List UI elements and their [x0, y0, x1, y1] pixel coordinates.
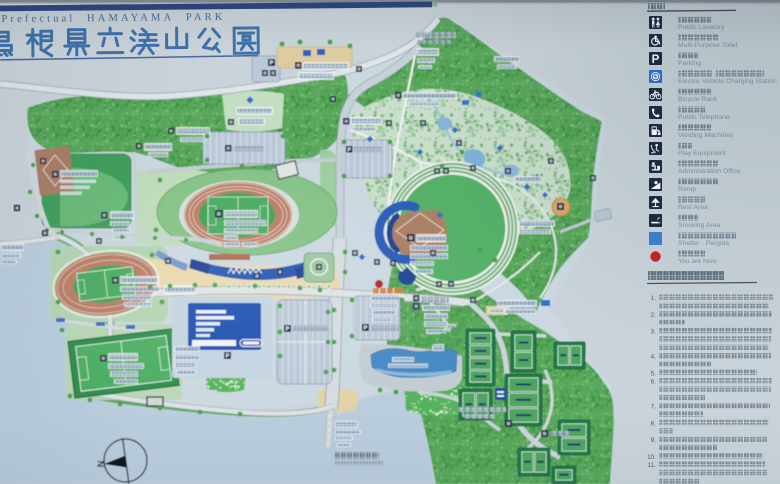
- svg-text:7.: 7.: [651, 404, 657, 411]
- svg-text:P: P: [652, 54, 660, 66]
- svg-text:5.: 5.: [651, 370, 657, 377]
- svg-text:3.: 3.: [651, 329, 657, 336]
- svg-text:2.: 2.: [651, 312, 657, 319]
- svg-text:Public Lavatory: Public Lavatory: [678, 24, 725, 31]
- svg-text:Administration Office: Administration Office: [678, 168, 741, 175]
- svg-text:1.: 1.: [651, 295, 657, 302]
- svg-text:Rest Area: Rest Area: [678, 204, 708, 211]
- svg-text:You are here: You are here: [678, 258, 717, 265]
- svg-text:Bicycle Rank: Bicycle Rank: [678, 96, 718, 103]
- svg-text:8.: 8.: [651, 420, 657, 427]
- svg-text:Parking: Parking: [678, 60, 701, 67]
- svg-text:P: P: [286, 327, 290, 333]
- svg-text:P: P: [348, 147, 352, 153]
- svg-text:Ramp: Ramp: [678, 186, 696, 193]
- svg-text:10.: 10.: [647, 454, 656, 461]
- svg-text:4.: 4.: [651, 354, 657, 361]
- svg-text:P: P: [226, 354, 230, 360]
- svg-text:Public Telephone: Public Telephone: [678, 114, 730, 121]
- svg-text:11.: 11.: [648, 462, 657, 469]
- svg-text:9.: 9.: [651, 437, 657, 444]
- svg-text:Prefectual HAMAYAMA PARK: Prefectual HAMAYAMA PARK: [1, 12, 225, 25]
- svg-text:P: P: [270, 61, 274, 67]
- svg-text:Vending Machines: Vending Machines: [678, 132, 734, 139]
- svg-text:Play Equipment: Play Equipment: [678, 150, 726, 157]
- svg-text:Multi-Purpose Toilet: Multi-Purpose Toilet: [678, 42, 738, 49]
- svg-text:6.: 6.: [651, 379, 657, 386]
- svg-text:Smoking Area: Smoking Area: [678, 222, 721, 229]
- svg-text:Electric Vehicle Charging Stat: Electric Vehicle Charging Station: [678, 78, 777, 85]
- svg-text:Shelter - Pergola: Shelter - Pergola: [678, 240, 729, 247]
- svg-text:N: N: [96, 461, 106, 468]
- svg-text:P: P: [364, 326, 368, 332]
